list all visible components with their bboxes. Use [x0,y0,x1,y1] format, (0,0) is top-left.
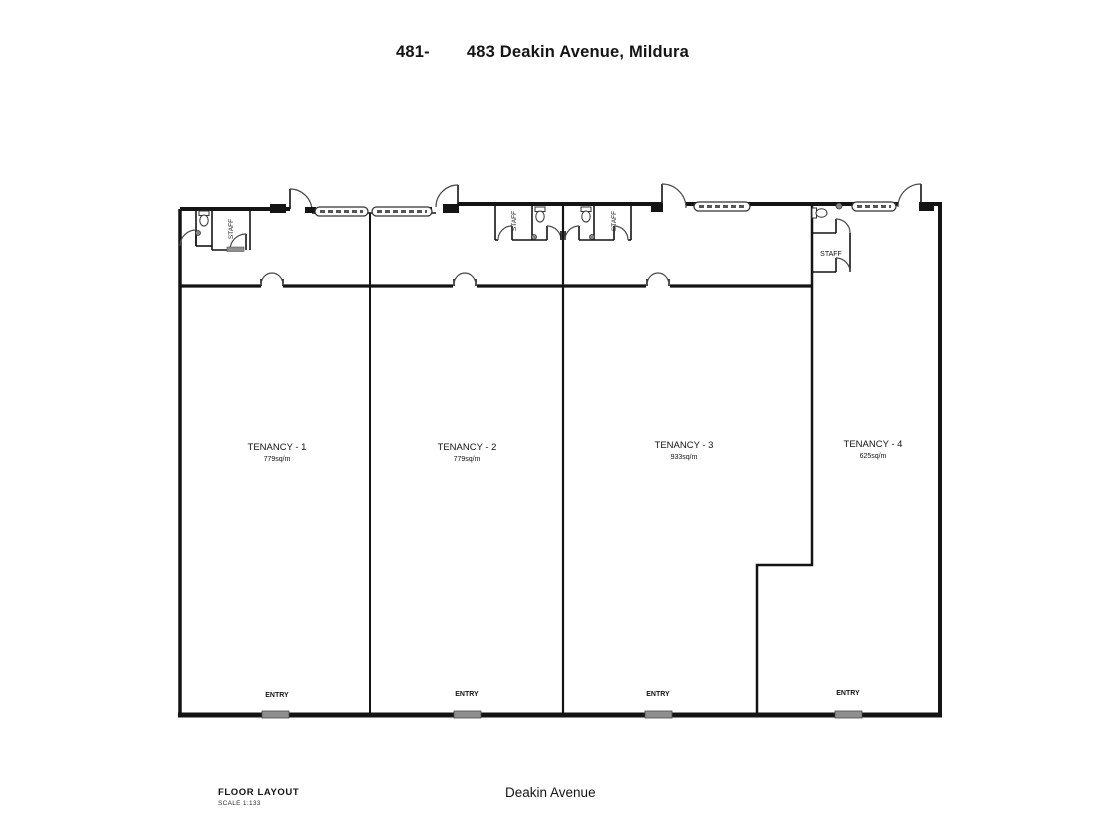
tenancy-divider-walls [370,204,812,715]
floor-plan-page: 481-483 Deakin Avenue, Mildura [0,0,1100,825]
toilet-icon [581,207,591,222]
tenancy-2-area: 779sq/m [454,456,481,463]
drawing-scale: SCALE 1:133 [218,801,299,808]
double-door-t3 [647,273,669,286]
tenancy-2-name: TENANCY - 2 [438,442,497,453]
door-stop [836,203,842,209]
toilet-icon [812,208,827,218]
door-stop [532,235,537,240]
staff-room-t3: STAFF [579,204,631,240]
rear-door-t3 [662,184,686,208]
staff-door-t1 [227,247,244,252]
double-door-t2 [454,273,476,286]
entry-label-t4: ENTRY [836,690,860,697]
double-door-t1 [261,273,283,286]
entry-door-t1 [262,711,289,718]
tenancy-labels: TENANCY - 1 779sq/m TENANCY - 2 779sq/m … [248,439,903,463]
entry-label-t3: ENTRY [646,691,670,698]
staff-label-t1: STAFF [228,219,235,239]
tenancy-4-name: TENANCY - 4 [844,439,903,450]
rear-door-t2 [436,185,458,207]
entry-door-t2 [454,711,481,718]
tenancy-3-area: 933sq/m [671,454,698,461]
drawing-title-block: FLOOR LAYOUT SCALE 1:133 [218,788,299,807]
toilet-icon [535,207,545,222]
rear-door-t4 [898,184,921,207]
staff-room-t1: STAFF [180,209,250,252]
street-name: Deakin Avenue [505,785,596,800]
entry-label-t1: ENTRY [265,692,289,699]
window-strip [372,207,432,216]
door-stop [590,235,595,240]
entry-door-t4 [835,711,862,718]
tenancy-4-area: 625sq/m [860,453,887,460]
entry-label-t2: ENTRY [455,691,479,698]
tenancy-1-area: 779sq/m [264,456,291,463]
entry-door-t3 [645,711,672,718]
tenancy-1-name: TENANCY - 1 [248,442,307,453]
staff-label-t4: STAFF [820,251,842,258]
staff-room-t4: STAFF [812,203,850,272]
staff-room-t2: STAFF [495,204,547,240]
divider-t3-t4 [757,204,812,715]
staff-label-t3: STAFF [611,211,618,231]
staff-label-t2: STAFF [511,211,518,231]
drawing-title: FLOOR LAYOUT [218,788,299,798]
window-strip [315,207,368,216]
outer-walls [178,204,942,715]
toilet-icon [199,211,209,226]
window-strip [852,202,896,211]
window-strip [694,202,750,211]
tenancy-3-name: TENANCY - 3 [655,440,714,451]
door-stop [196,231,201,236]
floor-plan-drawing: STAFF STAFF [0,0,1100,825]
